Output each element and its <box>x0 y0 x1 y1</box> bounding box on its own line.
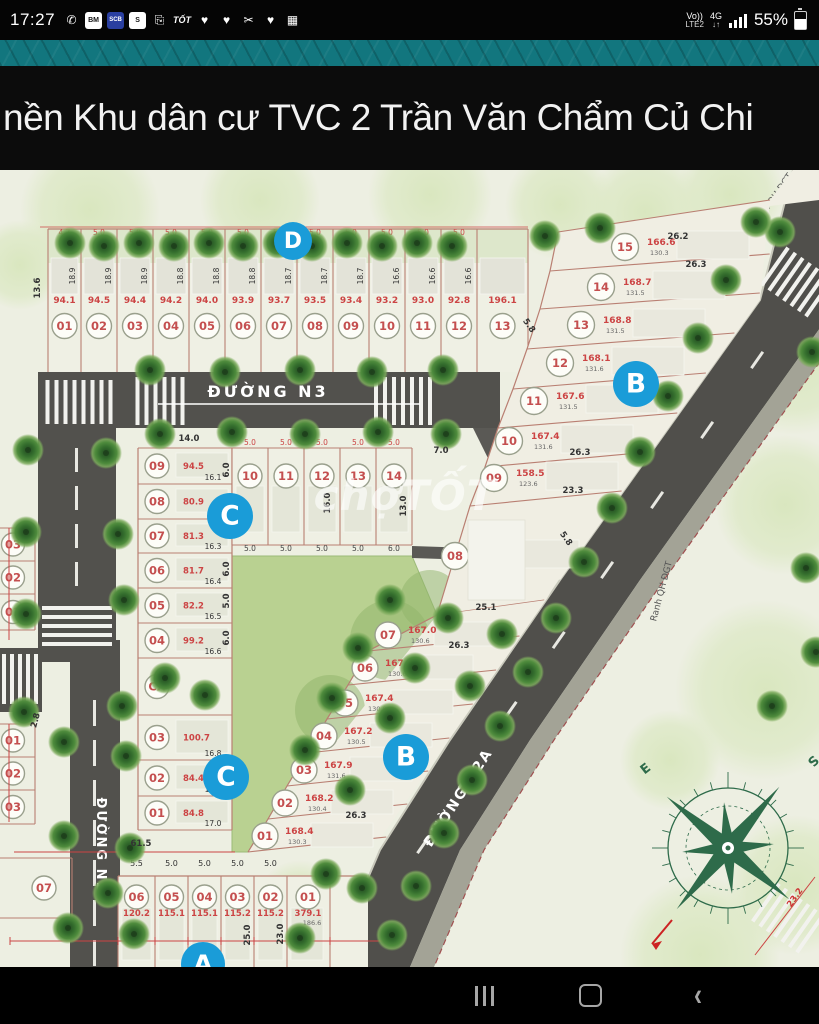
map-label: 130.3 <box>288 838 307 846</box>
dimension-label: 7.0 <box>433 446 448 456</box>
map-label: 04 <box>196 890 212 904</box>
section-badge-D: D <box>274 222 312 260</box>
baomoi-icon: BM <box>85 12 102 29</box>
plot-number: 06 <box>145 559 169 583</box>
map-label: 93.0 <box>412 296 434 306</box>
map-label: 10 <box>242 469 258 483</box>
tree-icon <box>376 919 408 951</box>
map-label: 5.0 <box>231 859 244 868</box>
plot-number: 09 <box>145 454 169 478</box>
map-label: 93.5 <box>304 296 326 306</box>
map-label: 18.8 <box>248 267 257 284</box>
map-label: 130.6 <box>411 637 430 645</box>
map-label: 16.6 <box>392 267 401 284</box>
signal-strength-icon <box>728 12 748 28</box>
map-label: 100.7 <box>183 734 210 744</box>
navigation-bar: ‹ <box>0 967 819 1024</box>
plot-number: 04 <box>193 885 217 909</box>
map-label: 168.7 <box>623 278 651 288</box>
section-badge-C: C <box>203 754 249 800</box>
back-button[interactable]: ‹ <box>663 967 733 1024</box>
dimension-label: 6.0 <box>222 462 232 477</box>
map-label: 02 <box>91 319 107 333</box>
map-label: 03 <box>127 319 143 333</box>
tree-icon <box>289 418 321 450</box>
plot-number: 05 <box>145 594 169 618</box>
tree-icon <box>209 356 241 388</box>
plot-number: 12 <box>547 350 574 377</box>
map-label: 15 <box>617 240 633 254</box>
map-label: 131.5 <box>606 327 625 335</box>
watermark: chợTỐT <box>314 464 499 520</box>
tree-icon <box>484 710 516 742</box>
map-label: 168.4 <box>285 827 313 837</box>
map-label: 02 <box>5 767 21 781</box>
map-label: 99.2 <box>183 637 204 647</box>
map-label: 06 <box>128 890 144 904</box>
map-label: 196.1 <box>488 296 516 306</box>
tree-icon <box>596 492 628 524</box>
tree-icon <box>48 820 80 852</box>
map-label: 158.5 <box>516 469 544 479</box>
dimension-label: 13.6 <box>33 277 43 298</box>
dimension-label: 25.0 <box>243 924 253 945</box>
plot-number: 15 <box>612 234 639 261</box>
map-label: 18.9 <box>68 267 77 284</box>
map-label: 168.8 <box>603 316 631 326</box>
tree-icon <box>584 212 616 244</box>
screenshot-icon: ✂ <box>240 12 257 29</box>
plot-number: 07 <box>32 876 56 900</box>
map-label: 10 <box>501 434 517 448</box>
tree-icon <box>316 682 348 714</box>
map-label: D <box>284 229 302 254</box>
tree-icon <box>682 322 714 354</box>
map-label: 131.5 <box>626 289 645 297</box>
tree-icon <box>456 764 488 796</box>
tree-icon <box>331 227 363 259</box>
map-label: 01 <box>56 319 72 333</box>
tree-icon <box>144 418 176 450</box>
map-label: 84.8 <box>183 809 204 819</box>
section-badge-B: B <box>613 361 659 407</box>
map-label: 93.2 <box>376 296 398 306</box>
map-label: 94.5 <box>183 462 204 472</box>
map-label: 80.9 <box>183 498 204 508</box>
plot-number: 11 <box>521 388 548 415</box>
dimension-label: 61.5 <box>131 839 152 849</box>
map-label: 11 <box>278 469 294 483</box>
battery-percent: 55% <box>754 10 788 30</box>
messenger-icon: S <box>129 12 146 29</box>
tree-icon <box>189 679 221 711</box>
tree-icon <box>374 584 406 616</box>
map-label: 08 <box>307 319 323 333</box>
plot-number: 03 <box>226 885 250 909</box>
map-label: 05 <box>163 890 179 904</box>
dimension-label: 23.0 <box>276 923 286 944</box>
map-label: 131.5 <box>559 403 578 411</box>
lazada-icon: ♥ <box>196 12 213 29</box>
map-label: 11 <box>415 319 431 333</box>
tree-icon <box>110 740 142 772</box>
tree-icon <box>342 632 374 664</box>
map-label: 16.5 <box>205 612 222 621</box>
map-label: C <box>220 501 239 532</box>
tree-icon <box>90 437 122 469</box>
map-label: 94.4 <box>124 296 146 306</box>
dimension-label: 26.3 <box>686 260 707 270</box>
map-label: 07 <box>271 319 287 333</box>
map-label: 18.9 <box>140 267 149 284</box>
plot-number: 02 <box>145 766 169 790</box>
tree-icon <box>216 416 248 448</box>
map-label: 16.6 <box>464 267 473 284</box>
plot-number: 01 <box>252 823 278 849</box>
map-label: 03 <box>229 890 245 904</box>
tree-icon <box>149 662 181 694</box>
home-button[interactable] <box>555 967 625 1024</box>
lazada-icon: ♥ <box>262 12 279 29</box>
lazada-icon: ♥ <box>218 12 235 29</box>
tree-icon <box>436 230 468 262</box>
plot-number: 02 <box>87 314 112 339</box>
map-label: 6.0 <box>388 544 400 553</box>
map-label: 04 <box>163 319 179 333</box>
map-label: 14 <box>593 280 609 294</box>
notification-icons: ✆BMSCBS⎘TỐT♥♥✂♥▦ <box>63 12 301 29</box>
dimension-label: 5.0 <box>222 593 232 608</box>
site-plan-image[interactable]: ĐƯỜNG N3ĐƯỜNG N1ĐƯỜNG N2ARanh QH ĐGTRanh… <box>0 170 819 967</box>
plot-number: 09 <box>339 314 364 339</box>
plot-number: 08 <box>442 543 469 570</box>
map-label: 5.0 <box>352 438 364 447</box>
map-label: 130.4 <box>308 805 327 813</box>
plot-number: 01 <box>52 314 77 339</box>
tree-icon <box>624 436 656 468</box>
map-label: 94.5 <box>88 296 110 306</box>
dimension-label: 6.0 <box>222 630 232 645</box>
plot-number: 02 <box>2 762 25 785</box>
tree-icon <box>346 872 378 904</box>
map-label: 18.7 <box>356 267 365 284</box>
section-badge-B: B <box>383 734 429 780</box>
map-label: A <box>193 949 213 967</box>
map-label: 01 <box>149 806 165 820</box>
tree-icon <box>52 912 84 944</box>
map-label: 81.3 <box>183 532 204 542</box>
map-label: 06 <box>149 564 165 578</box>
tree-icon <box>356 356 388 388</box>
map-label: 13 <box>573 318 589 332</box>
tree-icon <box>400 870 432 902</box>
map-label: B <box>626 369 646 400</box>
plot-number: 04 <box>159 314 184 339</box>
battery-icon <box>794 11 807 30</box>
map-label: 12 <box>451 319 467 333</box>
tree-icon <box>334 774 366 806</box>
tree-icon <box>568 546 600 578</box>
map-label: 08 <box>447 549 463 563</box>
tree-icon <box>540 602 572 634</box>
map-label: 02 <box>149 771 165 785</box>
plot-number: 07 <box>375 622 401 648</box>
tree-icon <box>123 227 155 259</box>
map-label: 120.2 <box>123 909 150 919</box>
map-label: 06 <box>235 319 251 333</box>
map-label: 18.8 <box>176 267 185 284</box>
system-status-icons: Vo))LTE2 4G↓↑ 55% <box>685 10 807 30</box>
tree-icon <box>158 230 190 262</box>
network-4g-icon: 4G↓↑ <box>710 12 722 29</box>
dimension-label: 23.3 <box>563 486 584 496</box>
plot-number: 01 <box>296 885 320 909</box>
tree-icon <box>108 584 140 616</box>
map-label: 02 <box>262 890 278 904</box>
map-label: 07 <box>36 881 52 895</box>
plot-number: 04 <box>145 629 169 653</box>
tree-icon <box>399 652 431 684</box>
plot-number: 12 <box>447 314 472 339</box>
plot-number: 07 <box>145 524 169 548</box>
tree-icon <box>710 264 742 296</box>
tree-icon <box>366 230 398 262</box>
plot-number: 11 <box>274 464 298 488</box>
dimension-label: 26.3 <box>346 811 367 821</box>
map-label: 168.2 <box>305 794 333 804</box>
map-label: 81.7 <box>183 567 204 577</box>
map-label: 94.2 <box>160 296 182 306</box>
plot-number: 02 <box>2 566 25 589</box>
map-label: 5.0 <box>264 859 277 868</box>
map-label: 18.8 <box>212 267 221 284</box>
tree-icon <box>454 670 486 702</box>
plot-number: 08 <box>303 314 328 339</box>
tree-icon <box>10 598 42 630</box>
clock: 17:27 <box>10 10 55 30</box>
map-label: 131.6 <box>534 443 553 451</box>
map-label: 16.1 <box>205 473 222 482</box>
tree-icon <box>134 354 166 386</box>
tree-icon <box>289 734 321 766</box>
map-label: 18.7 <box>284 267 293 284</box>
plot-number: 05 <box>160 885 184 909</box>
map-label: 93.7 <box>268 296 290 306</box>
tree-icon <box>310 858 342 890</box>
map-label: 01 <box>5 734 21 748</box>
map-label: 16.4 <box>205 577 222 586</box>
map-label: 167.0 <box>408 626 436 636</box>
volte-icon: Vo))LTE2 <box>685 12 704 29</box>
plot-number: 02 <box>259 885 283 909</box>
dimension-label: 26.3 <box>570 448 591 458</box>
map-label: 16.6 <box>428 267 437 284</box>
map-label: 115.2 <box>257 909 284 919</box>
map-label: 130.5 <box>347 738 366 746</box>
map-label: 12 <box>552 356 568 370</box>
plot-number: 06 <box>125 885 149 909</box>
tree-icon <box>118 918 150 950</box>
plot-number: 05 <box>195 314 220 339</box>
plot-number: 06 <box>231 314 256 339</box>
tree-icon <box>284 354 316 386</box>
map-label: 5.0 <box>244 544 256 553</box>
tree-icon <box>428 817 460 849</box>
dimension-label: 26.3 <box>449 641 470 651</box>
map-label: 168.1 <box>582 354 610 364</box>
map-label: 379.1 <box>295 909 322 919</box>
plot-number: 08 <box>145 490 169 514</box>
tree-icon <box>193 227 225 259</box>
tot-icon: TỐT <box>173 12 191 29</box>
tree-icon <box>432 602 464 634</box>
plot-number: 11 <box>411 314 436 339</box>
plot-number: 03 <box>145 726 169 750</box>
tree-icon <box>374 702 406 734</box>
tree-icon <box>486 618 518 650</box>
map-label: 167.9 <box>324 761 352 771</box>
map-label: 02 <box>277 796 293 810</box>
plot-number: 14 <box>588 274 615 301</box>
plot-number: 13 <box>568 312 595 339</box>
map-label: 10 <box>379 319 395 333</box>
home-icon <box>579 984 602 1007</box>
title-bar: nền Khu dân cư TVC 2 Trần Văn Chẩm Củ Ch… <box>0 66 819 170</box>
map-label: 07 <box>149 529 165 543</box>
site-plan-svg: ĐƯỜNG N3ĐƯỜNG N1ĐƯỜNG N2ARanh QH ĐGTRanh… <box>0 170 819 967</box>
map-label: 18.9 <box>104 267 113 284</box>
app-accent-strip <box>0 40 819 66</box>
viber-icon: ✆ <box>63 12 80 29</box>
map-label: 09 <box>343 319 359 333</box>
map-label: 11 <box>526 394 542 408</box>
plot-number: 02 <box>272 790 298 816</box>
tree-icon <box>362 416 394 448</box>
map-label: 04 <box>316 729 332 743</box>
map-label: 04 <box>149 634 165 648</box>
map-label: 94.0 <box>196 296 218 306</box>
map-label: 115.1 <box>158 909 185 919</box>
plot-number: 13 <box>490 314 515 339</box>
map-label: 92.8 <box>448 296 470 306</box>
dimension-label: 6.0 <box>222 561 232 576</box>
map-label: 01 <box>300 890 316 904</box>
tree-icon <box>48 726 80 758</box>
map-label: 123.6 <box>519 480 538 488</box>
map-label: 13 <box>494 319 510 333</box>
plot-number: 03 <box>2 796 25 819</box>
map-label: C <box>216 762 235 793</box>
dimension-label: 25.1 <box>476 603 497 613</box>
map-label: 5.0 <box>280 544 292 553</box>
map-label: 5.0 <box>165 859 178 868</box>
map-label: 18.7 <box>320 267 329 284</box>
tree-icon <box>756 690 788 722</box>
map-label: 84.4 <box>183 774 204 784</box>
map-label: 93.9 <box>232 296 254 306</box>
tree-icon <box>54 227 86 259</box>
map-label: 130.3 <box>650 249 669 257</box>
plot-number: 01 <box>2 729 25 752</box>
map-label: 115.2 <box>224 909 251 919</box>
map-label: 167.4 <box>531 432 559 442</box>
map-label: 94.1 <box>53 296 75 306</box>
tree-icon <box>512 656 544 688</box>
plot-number: 10 <box>238 464 262 488</box>
map-label: B <box>396 742 416 773</box>
share-icon: ⎘ <box>151 12 168 29</box>
tree-icon <box>740 206 772 238</box>
tree-icon <box>401 227 433 259</box>
dimension-label: 14.0 <box>179 434 200 444</box>
recents-icon <box>475 986 494 1006</box>
map-label: 01 <box>257 829 273 843</box>
map-label: 07 <box>380 628 396 642</box>
tree-icon <box>10 516 42 548</box>
map-label: 131.6 <box>585 365 604 373</box>
map-label: 03 <box>149 731 165 745</box>
plot-number: 10 <box>375 314 400 339</box>
gallery-icon: ▦ <box>284 12 301 29</box>
map-label: 09 <box>149 459 165 473</box>
plot-number: 07 <box>267 314 292 339</box>
back-icon: ‹ <box>694 977 702 1013</box>
map-label: 02 <box>5 571 21 585</box>
tree-icon <box>227 230 259 262</box>
status-bar: 17:27 ✆BMSCBS⎘TỐT♥♥✂♥▦ Vo))LTE2 4G↓↑ 55% <box>0 0 819 40</box>
map-label: 5.0 <box>198 859 211 868</box>
tree-icon <box>102 518 134 550</box>
map-label: 5.0 <box>352 544 364 553</box>
map-label: 08 <box>149 495 165 509</box>
plot-number: 03 <box>123 314 148 339</box>
map-label: 167.2 <box>344 727 372 737</box>
map-label: 115.1 <box>191 909 218 919</box>
map-label: 05 <box>149 599 165 613</box>
map-label: 05 <box>199 319 215 333</box>
map-label: 82.2 <box>183 602 204 612</box>
tree-icon <box>12 434 44 466</box>
map-label: 03 <box>5 800 21 814</box>
tree-icon <box>92 877 124 909</box>
map-label: 16.6 <box>205 647 222 656</box>
tree-icon <box>88 230 120 262</box>
plot-number: 01 <box>145 801 169 825</box>
map-label: 93.4 <box>340 296 362 306</box>
section-badge-C: C <box>207 493 253 539</box>
tree-icon <box>106 690 138 722</box>
tree-icon <box>284 922 316 954</box>
tree-icon <box>427 354 459 386</box>
scb-icon: SCB <box>107 12 124 29</box>
plot-number: 10 <box>496 428 523 455</box>
map-label: 17.0 <box>205 819 222 828</box>
tree-icon <box>529 220 561 252</box>
recents-button[interactable] <box>449 967 519 1024</box>
map-label: 5.0 <box>316 544 328 553</box>
page-title: nền Khu dân cư TVC 2 Trần Văn Chẩm Củ Ch… <box>3 97 753 139</box>
map-label: 167.6 <box>556 392 584 402</box>
map-label: 16.3 <box>205 542 222 551</box>
dimension-label: 26.2 <box>668 232 689 242</box>
